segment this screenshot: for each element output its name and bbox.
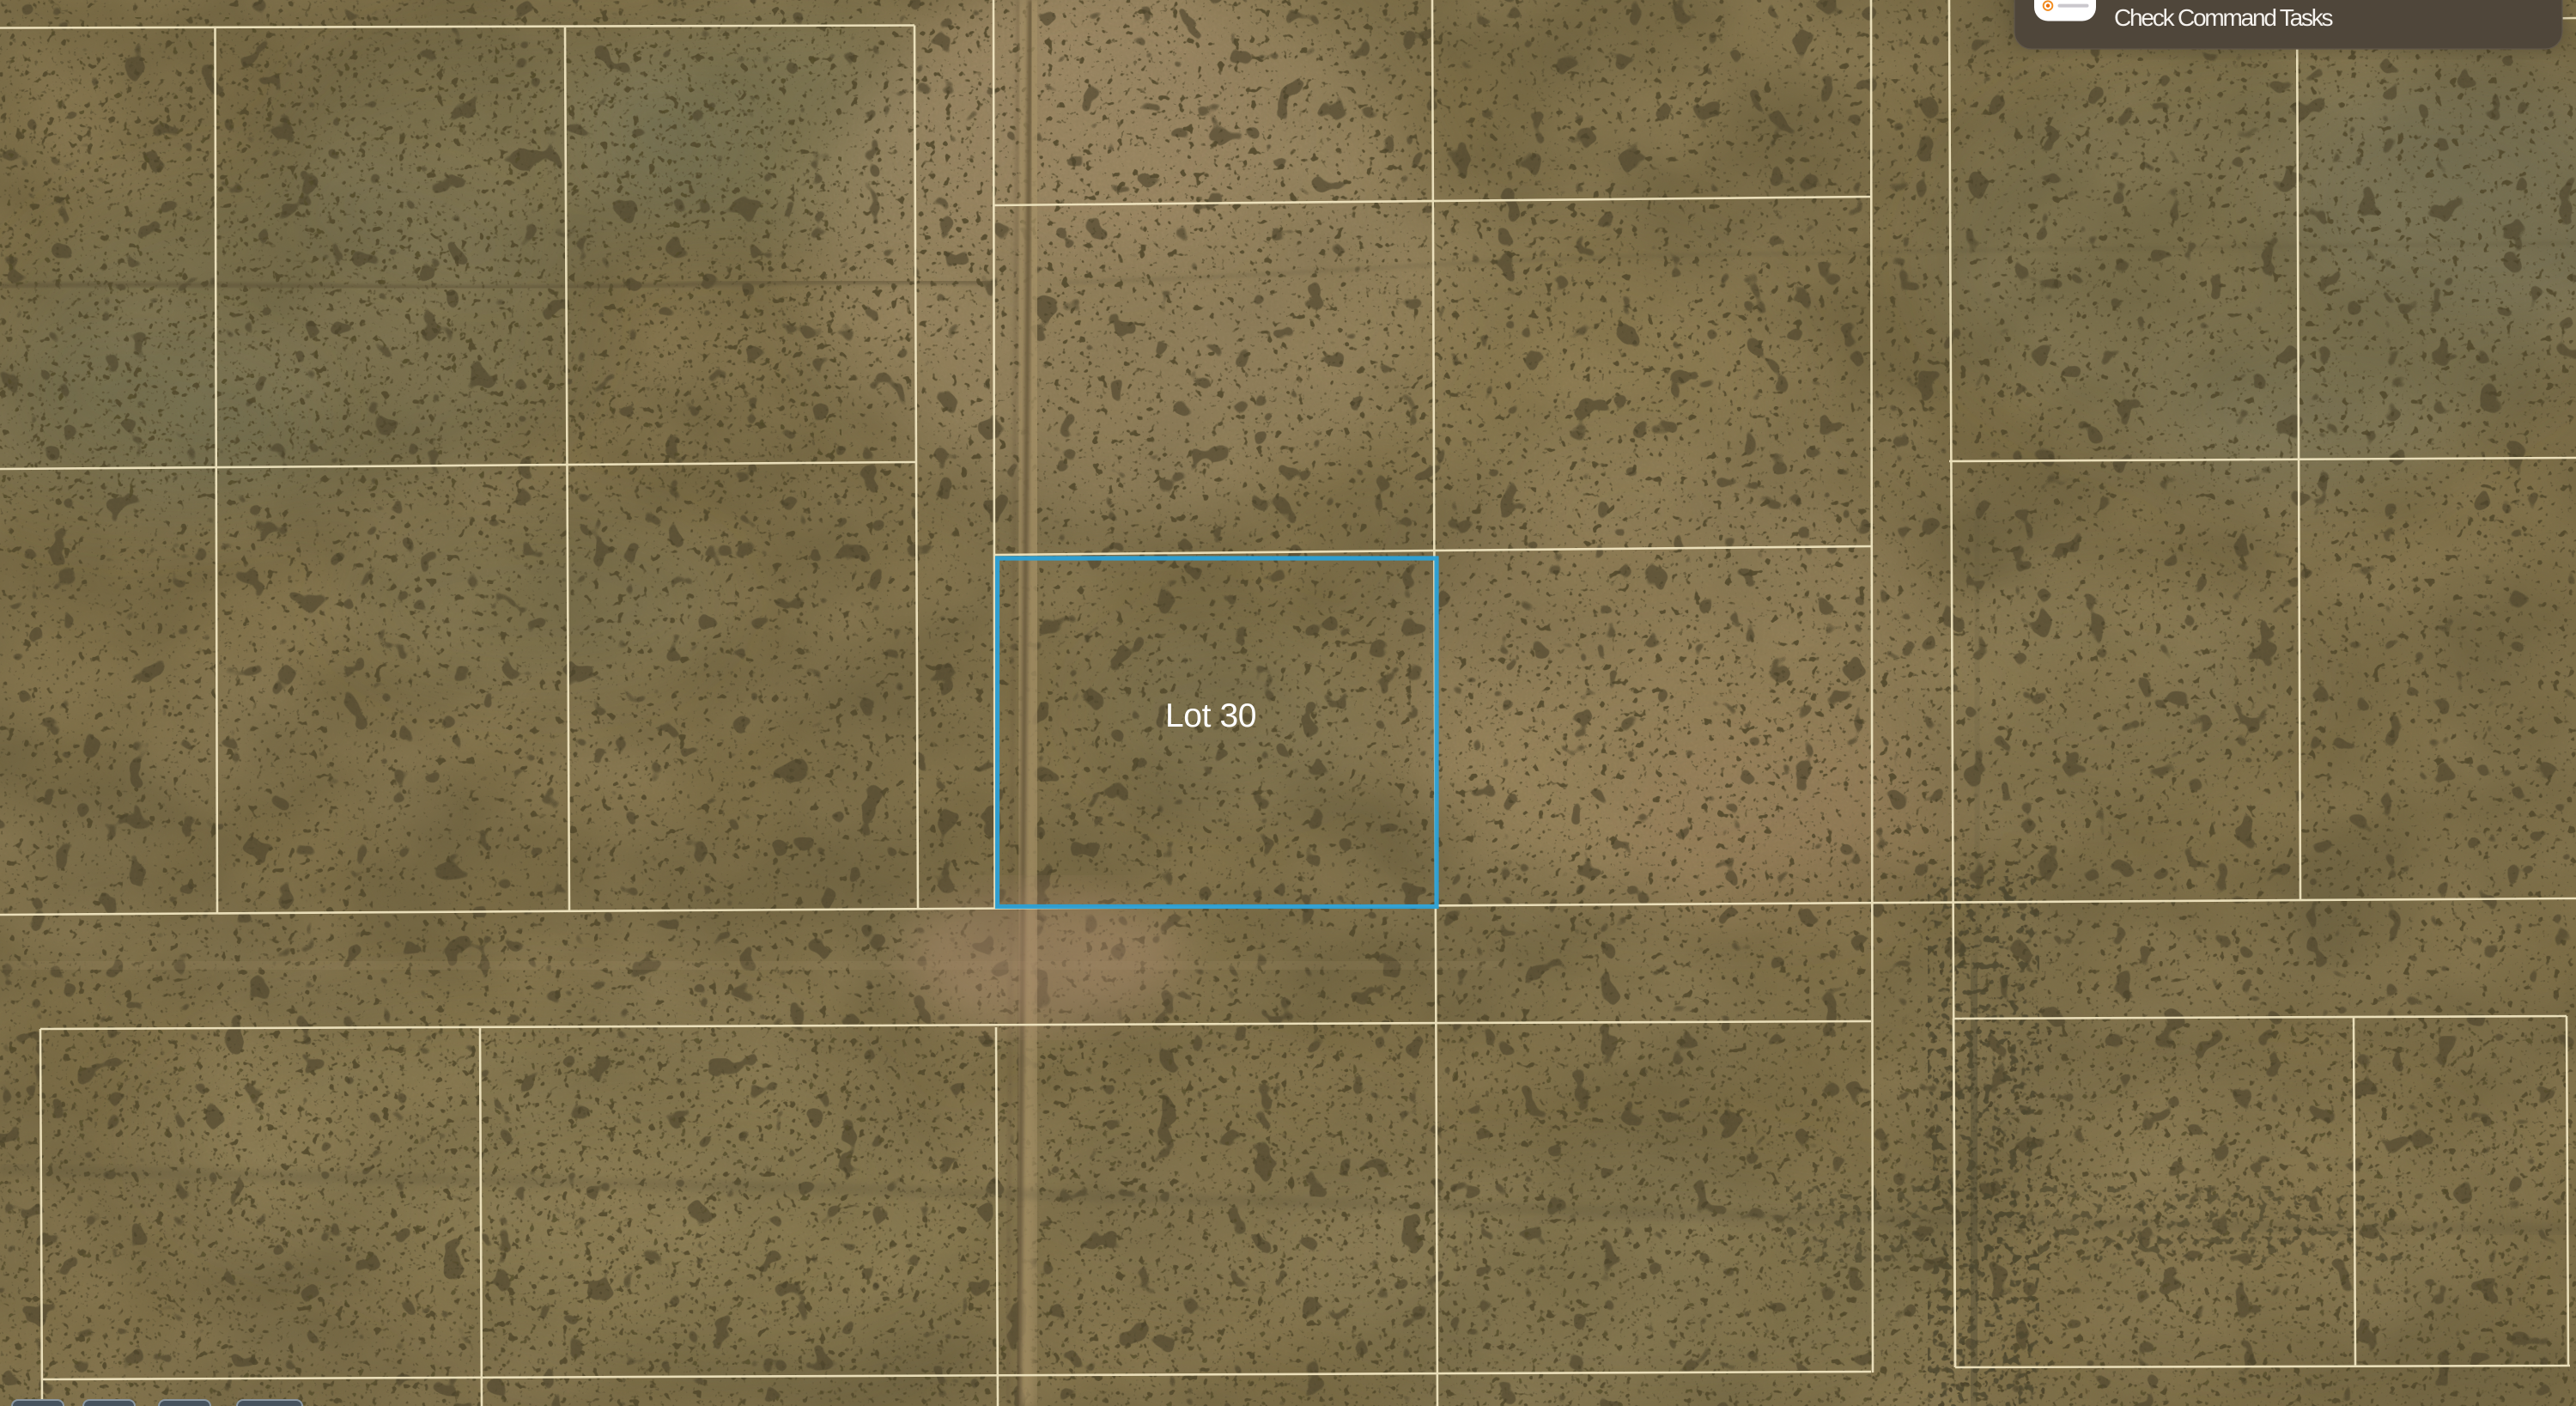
svg-text:Check Command Tasks: Check Command Tasks (2114, 4, 2333, 31)
svg-text:Lot 30: Lot 30 (1165, 697, 1256, 734)
